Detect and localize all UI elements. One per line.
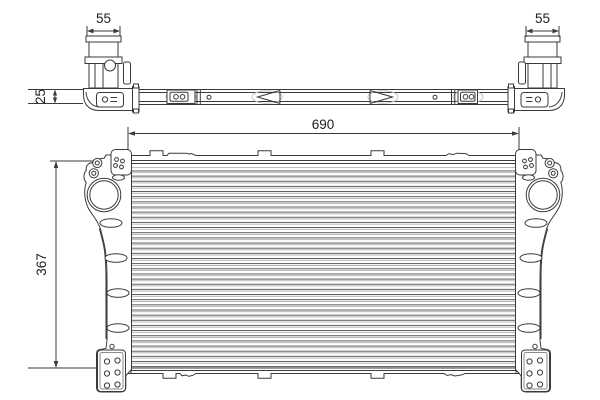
technical-drawing-page: 55 xyxy=(0,0,600,400)
oval-slot xyxy=(100,219,122,228)
dimension-port-right-width: 55 xyxy=(526,11,559,37)
bolt-boss xyxy=(93,158,102,167)
dim-label-depth: 25 xyxy=(33,89,48,104)
port-left-top-view xyxy=(85,36,131,88)
arrowhead xyxy=(553,29,560,34)
arrowhead xyxy=(526,29,533,34)
bracket-bottom-right xyxy=(522,350,550,392)
bracket-bottom-left xyxy=(98,350,126,392)
slot xyxy=(113,175,125,181)
port-right-top-view xyxy=(519,36,562,88)
arrowhead xyxy=(54,361,59,368)
dim-label-port-left: 55 xyxy=(96,11,111,26)
clamp-plate xyxy=(521,93,548,108)
oval-slot xyxy=(105,254,127,263)
mount-plate xyxy=(508,87,515,113)
core xyxy=(128,151,519,378)
port-hole xyxy=(105,60,116,71)
dim-label-port-right: 55 xyxy=(535,11,550,26)
mount-plate xyxy=(133,87,140,113)
port-right-front xyxy=(526,178,560,212)
elbow-left xyxy=(84,84,140,113)
bottom-rail-contour xyxy=(128,374,519,379)
rivet-hole xyxy=(433,95,437,99)
tank-left xyxy=(84,150,132,393)
slot xyxy=(523,175,535,181)
top-rail-contour xyxy=(128,151,519,156)
oval-slot xyxy=(520,254,542,263)
bolt-boss xyxy=(545,158,554,167)
dimension-depth: 25 xyxy=(28,89,83,104)
dim-label-core-width: 690 xyxy=(312,117,335,132)
clip-right xyxy=(452,90,478,105)
top-view: 55 xyxy=(28,11,565,113)
oval-slot xyxy=(525,219,547,228)
dim-label-core-height: 367 xyxy=(34,253,49,276)
arrowhead xyxy=(54,161,59,168)
arrowhead xyxy=(512,131,519,136)
side-tab xyxy=(519,62,526,84)
oval-slot xyxy=(518,324,540,333)
rivet-hole xyxy=(207,95,211,99)
arrowhead xyxy=(114,29,121,34)
arrowhead xyxy=(53,98,57,104)
oval-slot xyxy=(107,289,129,298)
dimension-core-width: 690 xyxy=(128,117,519,151)
technical-drawing-canvas: 55 xyxy=(0,0,600,400)
clamp-plate xyxy=(97,93,124,108)
drawing-root: 55 xyxy=(28,11,565,392)
core-fins xyxy=(131,167,516,369)
dimension-port-left-width: 55 xyxy=(87,11,120,37)
clip-left xyxy=(167,90,200,105)
crossbar-top-view xyxy=(139,90,511,105)
bolt-boss xyxy=(89,169,98,178)
bolt-boss xyxy=(549,169,558,178)
tank-right xyxy=(516,150,564,393)
oval-slot xyxy=(107,324,129,333)
side-tab xyxy=(124,62,131,84)
front-view: 690 367 xyxy=(28,117,563,392)
arrowhead xyxy=(128,131,135,136)
arrowhead xyxy=(87,29,94,34)
arrowhead xyxy=(53,90,57,96)
oval-slot xyxy=(518,289,540,298)
port-left-front xyxy=(87,178,121,212)
